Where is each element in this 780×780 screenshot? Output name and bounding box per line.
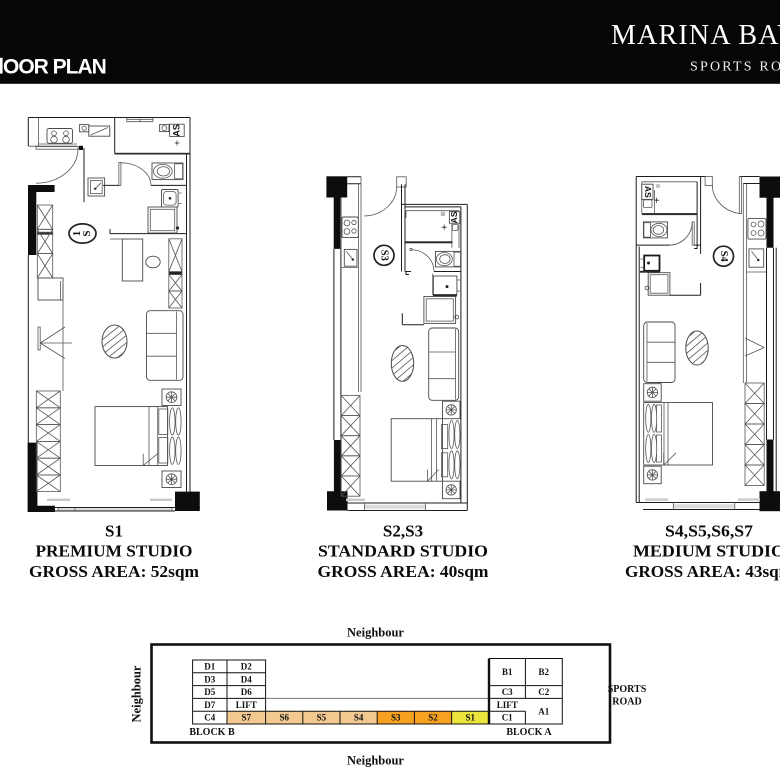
svg-text:BLOCK B: BLOCK B: [189, 727, 235, 738]
svg-text:Neighbour: Neighbour: [347, 754, 404, 768]
svg-text:S: S: [81, 230, 93, 236]
svg-text:S5: S5: [317, 713, 327, 723]
svg-text:STANDARD STUDIO: STANDARD STUDIO: [318, 542, 488, 561]
svg-text:PREMIUM STUDIO: PREMIUM STUDIO: [36, 542, 193, 561]
svg-text:S2: S2: [428, 713, 438, 723]
svg-text:Neighbour: Neighbour: [347, 626, 404, 640]
svg-text:D6: D6: [241, 687, 252, 697]
svg-text:LIFT: LIFT: [236, 700, 257, 710]
svg-text:D1: D1: [204, 662, 215, 672]
svg-text:C3: C3: [502, 687, 513, 697]
svg-text:GROSS AREA: 43sqm: GROSS AREA: 43sqm: [625, 562, 780, 581]
svg-text:S3: S3: [379, 250, 390, 261]
svg-text:S7: S7: [242, 713, 252, 723]
svg-text:S4: S4: [354, 713, 364, 723]
svg-text:ROAD: ROAD: [612, 697, 641, 708]
svg-text:Neighbour: Neighbour: [130, 665, 144, 722]
svg-text:AS: AS: [449, 211, 459, 223]
svg-text:S4: S4: [718, 251, 729, 263]
svg-text:S3: S3: [391, 713, 401, 723]
svg-text:C4: C4: [204, 713, 215, 723]
svg-text:S1: S1: [105, 522, 123, 541]
svg-text:SPORTS: SPORTS: [608, 684, 647, 695]
svg-text:S2,S3: S2,S3: [383, 522, 423, 541]
svg-text:D3: D3: [204, 674, 215, 684]
svg-text:B2: B2: [539, 667, 550, 677]
svg-text:AS: AS: [643, 186, 653, 198]
svg-text:C1: C1: [502, 713, 513, 723]
svg-text:S6: S6: [279, 713, 289, 723]
svg-text:SPORTS ROAD: SPORTS ROAD: [690, 59, 780, 74]
svg-text:D2: D2: [241, 662, 252, 672]
svg-text:MEDIUM STUDIO: MEDIUM STUDIO: [633, 542, 780, 561]
svg-text:D5: D5: [204, 687, 215, 697]
svg-text:A1: A1: [538, 707, 549, 717]
svg-text:D7: D7: [204, 700, 215, 710]
svg-text:BLOCK A: BLOCK A: [506, 727, 552, 738]
svg-text:GROSS AREA: 52sqm: GROSS AREA: 52sqm: [29, 562, 199, 581]
svg-text:LIFT: LIFT: [497, 700, 518, 710]
svg-text:D4: D4: [241, 674, 252, 684]
svg-text:GROSS AREA: 40sqm: GROSS AREA: 40sqm: [318, 562, 489, 581]
svg-text:S1: S1: [465, 713, 475, 723]
svg-text:B1: B1: [502, 667, 513, 677]
svg-text:S4,S5,S6,S7: S4,S5,S6,S7: [665, 522, 754, 541]
svg-text:C2: C2: [538, 687, 549, 697]
svg-text:AS: AS: [171, 124, 181, 137]
svg-text:MARINA BAY: MARINA BAY: [611, 20, 780, 51]
svg-text:OOR PLAN: OOR PLAN: [3, 56, 106, 79]
